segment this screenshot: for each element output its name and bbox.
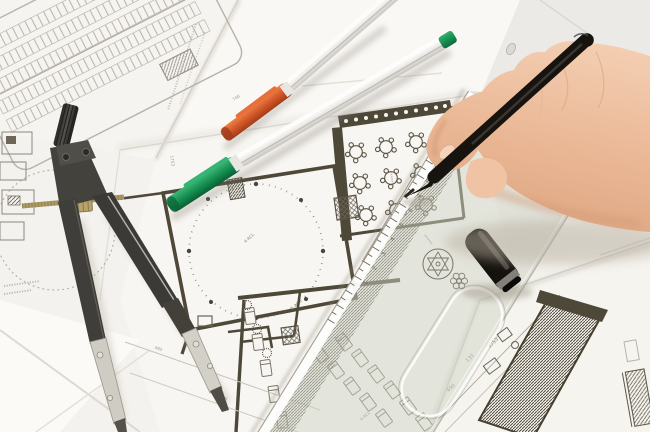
shaft-crosshatch: [281, 326, 300, 345]
stair-crosshatch: [334, 195, 359, 220]
hinge-screw: [63, 154, 70, 161]
pen-tip-shadow: [402, 197, 430, 207]
photo-architect-drawing-scene: 4-ACL 4-ACL 1753 746 940: [0, 0, 650, 432]
photo-canvas: 4-ACL 4-ACL 1753 746 940: [0, 0, 650, 432]
hinge-screw: [83, 149, 90, 156]
cap-shadow: [461, 284, 533, 300]
